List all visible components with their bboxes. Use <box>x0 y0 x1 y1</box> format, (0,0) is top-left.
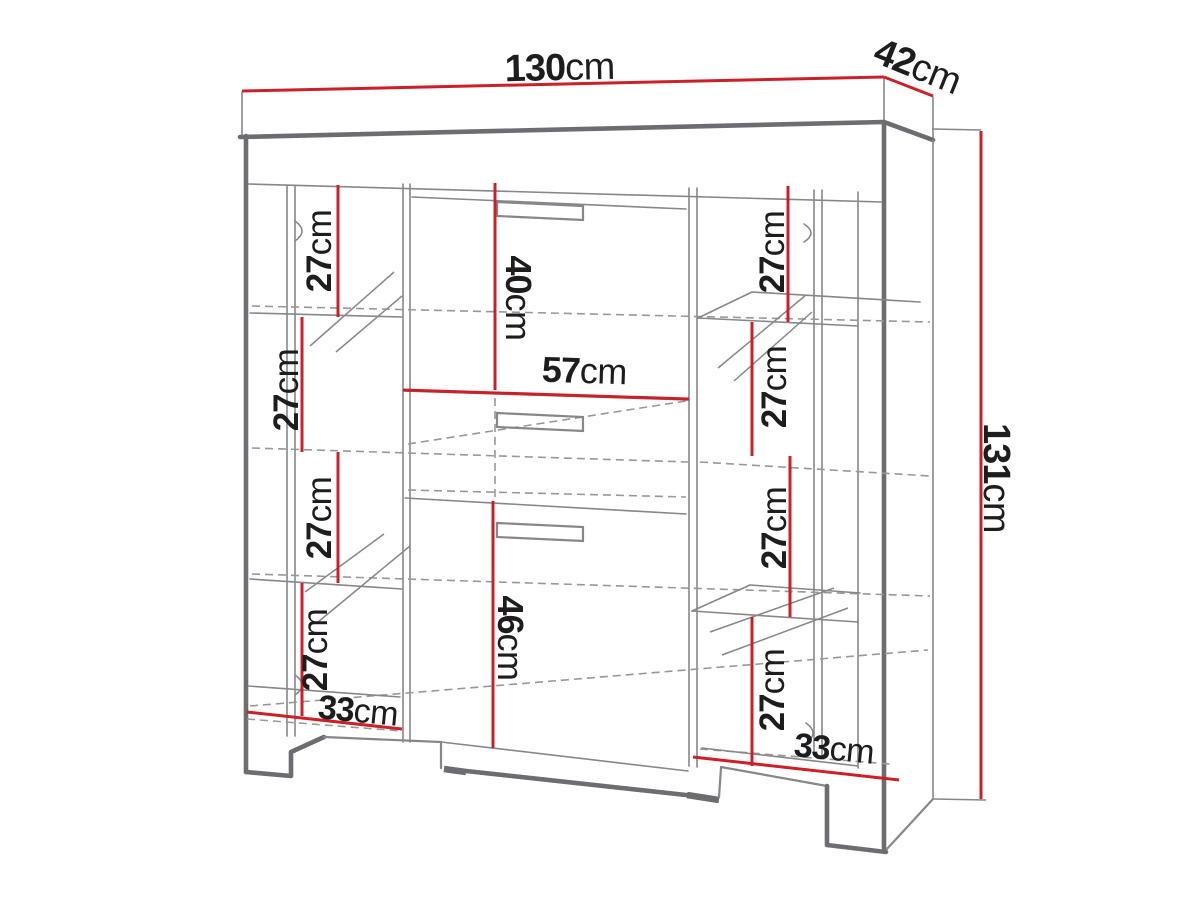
dim-left-shelf-1-label: 27cm <box>300 210 339 293</box>
canvas-background <box>0 0 1200 900</box>
cabinet-drawing: 130cm 42cm 131cm 40cm 57cm 46cm 27cm 27c… <box>0 0 1200 900</box>
dim-width-label: 130cm <box>504 46 615 90</box>
dim-right-base-depth-label: 33cm <box>792 726 875 772</box>
dim-right-shelf-3-label: 27cm <box>755 487 794 570</box>
dim-left-base-depth-label: 33cm <box>316 688 399 734</box>
dim-top-door-label: 40cm <box>498 255 539 340</box>
dim-middle-width-label: 57cm <box>541 349 627 393</box>
dim-left-shelf-2-label: 27cm <box>267 349 306 432</box>
dim-left-shelf-4-label: 27cm <box>296 609 335 692</box>
dim-left-shelf-3-label: 27cm <box>300 477 339 560</box>
plinth-foot <box>444 769 466 772</box>
dim-right-shelf-2-label: 27cm <box>755 346 794 429</box>
dim-height-label: 131cm <box>975 423 1017 533</box>
dim-bottom-door-label: 46cm <box>490 595 531 680</box>
dim-right-shelf-4-label: 27cm <box>753 649 792 732</box>
dim-right-shelf-1-label: 27cm <box>753 211 792 294</box>
furniture-dimension-diagram: 130cm 42cm 131cm 40cm 57cm 46cm 27cm 27c… <box>0 0 1200 900</box>
